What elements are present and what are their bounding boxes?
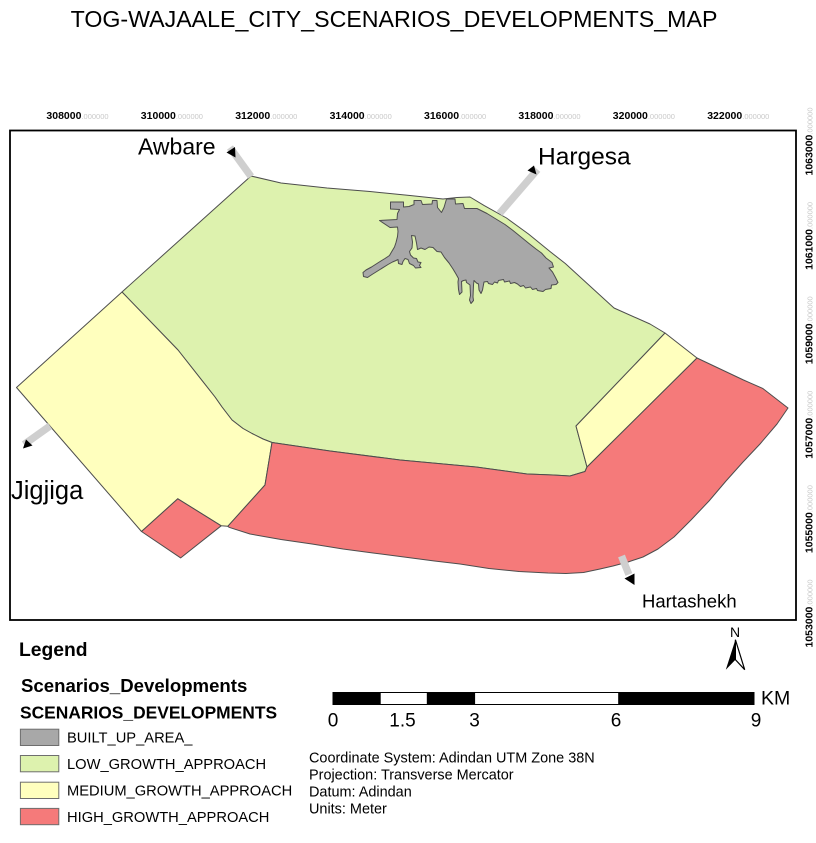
svg-text:Coordinate System: Adindan UTM: Coordinate System: Adindan UTM Zone 38N bbox=[309, 751, 595, 767]
svg-text:322000.000000: 322000.000000 bbox=[707, 110, 769, 122]
svg-text:316000.000000: 316000.000000 bbox=[424, 110, 486, 122]
svg-text:Units: Meter: Units: Meter bbox=[309, 802, 387, 818]
svg-text:Scenarios_Developments: Scenarios_Developments bbox=[21, 675, 247, 696]
svg-text:BUILT_UP_AREA_: BUILT_UP_AREA_ bbox=[67, 731, 193, 747]
svg-text:1053000.000000: 1053000.000000 bbox=[804, 579, 816, 647]
svg-text:0: 0 bbox=[328, 711, 339, 732]
svg-text:LOW_GROWTH_APPROACH: LOW_GROWTH_APPROACH bbox=[67, 757, 266, 773]
svg-text:310000.000000: 310000.000000 bbox=[141, 110, 203, 122]
svg-text:Jigjiga: Jigjiga bbox=[11, 477, 84, 505]
svg-text:1059000.000000: 1059000.000000 bbox=[804, 296, 816, 364]
svg-text:Hargesa: Hargesa bbox=[538, 144, 631, 171]
svg-text:312000.000000: 312000.000000 bbox=[235, 110, 297, 122]
svg-text:Awbare: Awbare bbox=[138, 134, 216, 160]
svg-text:1061000.000000: 1061000.000000 bbox=[804, 202, 816, 270]
svg-text:Projection: Transverse Mercato: Projection: Transverse Mercator bbox=[309, 768, 514, 784]
svg-text:Hartashekh: Hartashekh bbox=[642, 591, 737, 612]
svg-text:308000.000000: 308000.000000 bbox=[46, 110, 108, 122]
svg-text:318000.000000: 318000.000000 bbox=[518, 110, 580, 122]
svg-text:MEDIUM_GROWTH_APPROACH: MEDIUM_GROWTH_APPROACH bbox=[67, 784, 292, 800]
svg-text:Datum: Adindan: Datum: Adindan bbox=[309, 785, 412, 801]
svg-text:9: 9 bbox=[751, 711, 762, 732]
svg-text:1055000.000000: 1055000.000000 bbox=[804, 485, 816, 553]
svg-text:1.5: 1.5 bbox=[389, 711, 415, 732]
svg-text:1057000.000000: 1057000.000000 bbox=[804, 391, 816, 459]
svg-text:314000.000000: 314000.000000 bbox=[330, 110, 392, 122]
svg-text:SCENARIOS_DEVELOPMENTS: SCENARIOS_DEVELOPMENTS bbox=[20, 703, 277, 723]
svg-text:HIGH_GROWTH_APPROACH: HIGH_GROWTH_APPROACH bbox=[67, 810, 269, 826]
svg-text:N: N bbox=[730, 624, 740, 640]
svg-text:TOG-WAJAALE_CITY_SCENARIOS_DEV: TOG-WAJAALE_CITY_SCENARIOS_DEVELOPMENTS_… bbox=[71, 6, 718, 32]
svg-text:KM: KM bbox=[761, 688, 790, 710]
svg-text:1063000.000000: 1063000.000000 bbox=[804, 107, 816, 175]
svg-text:Legend: Legend bbox=[19, 640, 88, 661]
svg-text:3: 3 bbox=[469, 711, 480, 732]
svg-text:320000.000000: 320000.000000 bbox=[613, 110, 675, 122]
svg-text:6: 6 bbox=[611, 711, 622, 732]
